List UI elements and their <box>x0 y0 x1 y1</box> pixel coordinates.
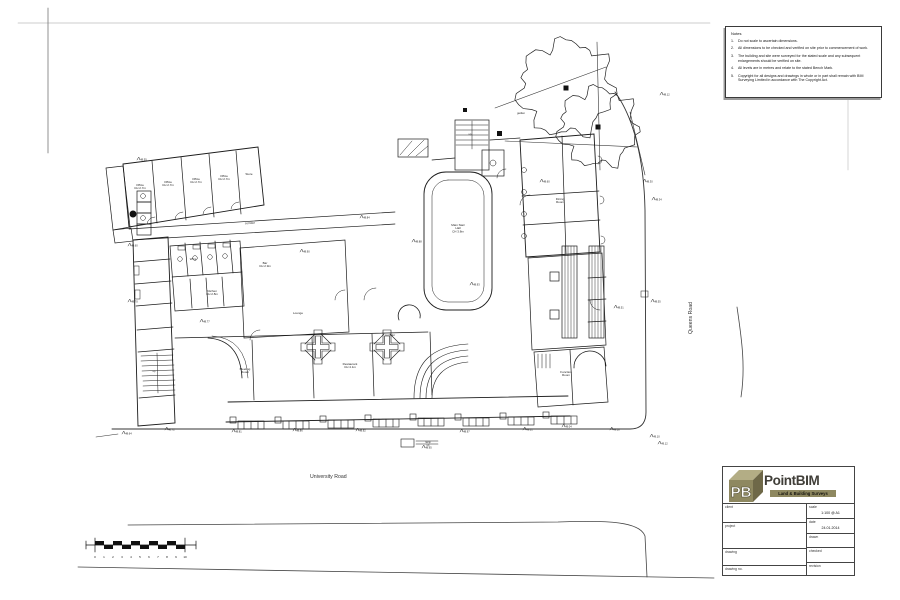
pavement-detail <box>401 439 438 447</box>
spot-level-value: 49.12 <box>661 442 668 446</box>
south-range <box>175 288 570 422</box>
west-stair-hatch <box>141 353 175 393</box>
building-plan <box>106 108 648 447</box>
field-checked: checked <box>807 548 854 563</box>
sheet-corner-marks <box>18 8 848 170</box>
spot-level-value: 49.01 <box>526 428 533 432</box>
room-label: FunctionRoom <box>560 370 572 377</box>
spot-level-value: 48.77 <box>203 320 210 324</box>
room-label: OfficeCH 2.7m <box>134 183 146 190</box>
spot-level-value: 48.70 <box>131 300 138 304</box>
university-road-label: University Road <box>310 474 347 480</box>
spot-level-value: 48.51 <box>617 306 624 310</box>
room-label: corridor <box>385 333 395 337</box>
road-lines <box>78 307 743 578</box>
field-drawing: drawing <box>723 549 807 566</box>
spot-level-value: 49.04 <box>565 425 572 429</box>
note-item: 4.All levels are in metres and relate to… <box>731 66 876 71</box>
note-item: 2.All dimensions to be checked and verif… <box>731 46 876 51</box>
room-label: up <box>469 133 472 136</box>
field-scale: scale 1:100 @ A1 <box>807 504 854 519</box>
external-steps-east <box>550 246 648 338</box>
spot-level-value: 48.60 <box>543 180 550 184</box>
notes-title: Notes <box>731 31 876 36</box>
scale-number: 10 <box>183 555 187 559</box>
spot-level-value: 48.72 <box>168 428 175 432</box>
corridor-walls <box>129 212 395 240</box>
room-label: Lounge <box>293 311 303 315</box>
scale-number: 4 <box>130 555 132 559</box>
room-label: BarCH 2.9m <box>259 261 271 268</box>
queens-road-label: Queens Road <box>688 302 694 334</box>
room-label: KitchenCH 2.8m <box>206 289 218 296</box>
field-drawn: drawn <box>807 534 854 548</box>
logo-letters: PB <box>731 484 752 501</box>
spot-level-value: 48.12 <box>663 93 670 97</box>
scale-number: 9 <box>175 555 177 559</box>
spot-level-value: 48.95 <box>425 446 432 450</box>
spot-level-value: 48.55 <box>140 158 147 162</box>
spot-level-value: 48.86 <box>296 429 303 433</box>
room-label: MeetingRoom <box>240 367 251 374</box>
brand-name: PointBIM <box>764 473 819 488</box>
room-label: garden <box>517 111 526 115</box>
scale-number: 0 <box>94 555 96 559</box>
company-logo: PB PointBIM Land & Building Surveys <box>723 467 856 503</box>
room-label: corridor <box>245 221 255 226</box>
spot-level-value: 48.93 <box>473 283 480 287</box>
pb-cube-logo-icon: PB <box>726 468 766 504</box>
scale-bar <box>86 538 196 552</box>
note-item: 5.Copyright for all designs and drawings… <box>731 74 876 84</box>
scale-number: 1 <box>103 555 105 559</box>
west-wing <box>133 237 175 426</box>
note-item: 1.Do not scale to ascertain dimensions. <box>731 39 876 44</box>
spot-level-value: 48.55 <box>654 300 661 304</box>
east-wing <box>520 134 605 257</box>
spot-levels: 48.6448.7248.8148.8648.9248.9548.9749.01… <box>122 92 670 450</box>
spot-level-value: 48.97 <box>463 430 470 434</box>
tree-trunk <box>596 125 601 130</box>
spot-level-value: 48.64 <box>125 432 132 436</box>
notes-list: 1.Do not scale to ascertain dimensions.2… <box>731 39 876 83</box>
scale-number: 6 <box>148 555 150 559</box>
garden-fence-lines <box>495 42 645 175</box>
room-label: OfficeCH 2.7m <box>162 180 174 187</box>
scale-number: 7 <box>157 555 159 559</box>
northwest-annex <box>106 166 151 243</box>
spot-level-value: 49.10 <box>653 435 660 439</box>
spot-level-value: 49.08 <box>613 428 620 432</box>
field-project: project <box>723 523 807 549</box>
spot-level-value: 48.88 <box>415 240 422 244</box>
room-label: OfficeCH 2.7m <box>190 177 202 184</box>
room-label: WCs <box>190 257 197 261</box>
main-stair-hall <box>398 172 492 320</box>
room-label: Store <box>245 172 253 176</box>
spot-level-value: 48.34 <box>655 198 662 202</box>
notes-box: Notes 1.Do not scale to ascertain dimens… <box>725 26 882 98</box>
tree-trunk <box>564 86 569 91</box>
room-label: OfficeCH 2.7m <box>218 174 230 181</box>
title-block-table: client project drawing drawing no. scale… <box>723 503 854 576</box>
curved-sweep-stair <box>414 344 468 398</box>
spot-level-value: 48.60 <box>131 244 138 248</box>
scale-number: 2 <box>112 555 114 559</box>
room-label: Main StairHallCH 3.8m <box>451 223 465 233</box>
spot-level-value: 48.92 <box>359 429 366 433</box>
room-label: DiningRoom <box>556 197 565 204</box>
title-block: PB PointBIM Land & Building Surveys clie… <box>722 466 855 576</box>
drawing-sheet: OfficeCH 2.7mOfficeCH 2.7mOfficeCH 2.7mO… <box>0 0 900 600</box>
scale-bar-numbers: 012345678910 <box>94 555 187 559</box>
north-stair-block <box>398 108 520 178</box>
scale-number: 8 <box>166 555 168 559</box>
field-date: date 24.01.2014 <box>807 519 854 534</box>
brand-tagline: Land & Building Surveys <box>770 490 836 497</box>
spot-level-value: 48.90 <box>303 250 310 254</box>
spot-level-value: 48.81 <box>235 430 242 434</box>
field-revision: revision <box>807 563 854 576</box>
note-item: 3.The building and site were surveyed fo… <box>731 54 876 64</box>
field-drawing-no: drawing no. <box>723 566 807 576</box>
bar-room <box>208 240 349 378</box>
bay-windows <box>230 412 577 429</box>
room-label: RestaurantCH 4.1m <box>343 362 358 369</box>
field-client: client <box>723 504 807 523</box>
spot-level-value: 48.84 <box>363 216 370 220</box>
wc-block <box>170 240 244 311</box>
spot-level-value: 48.30 <box>646 180 653 184</box>
scale-number: 3 <box>121 555 123 559</box>
scale-number: 5 <box>139 555 141 559</box>
